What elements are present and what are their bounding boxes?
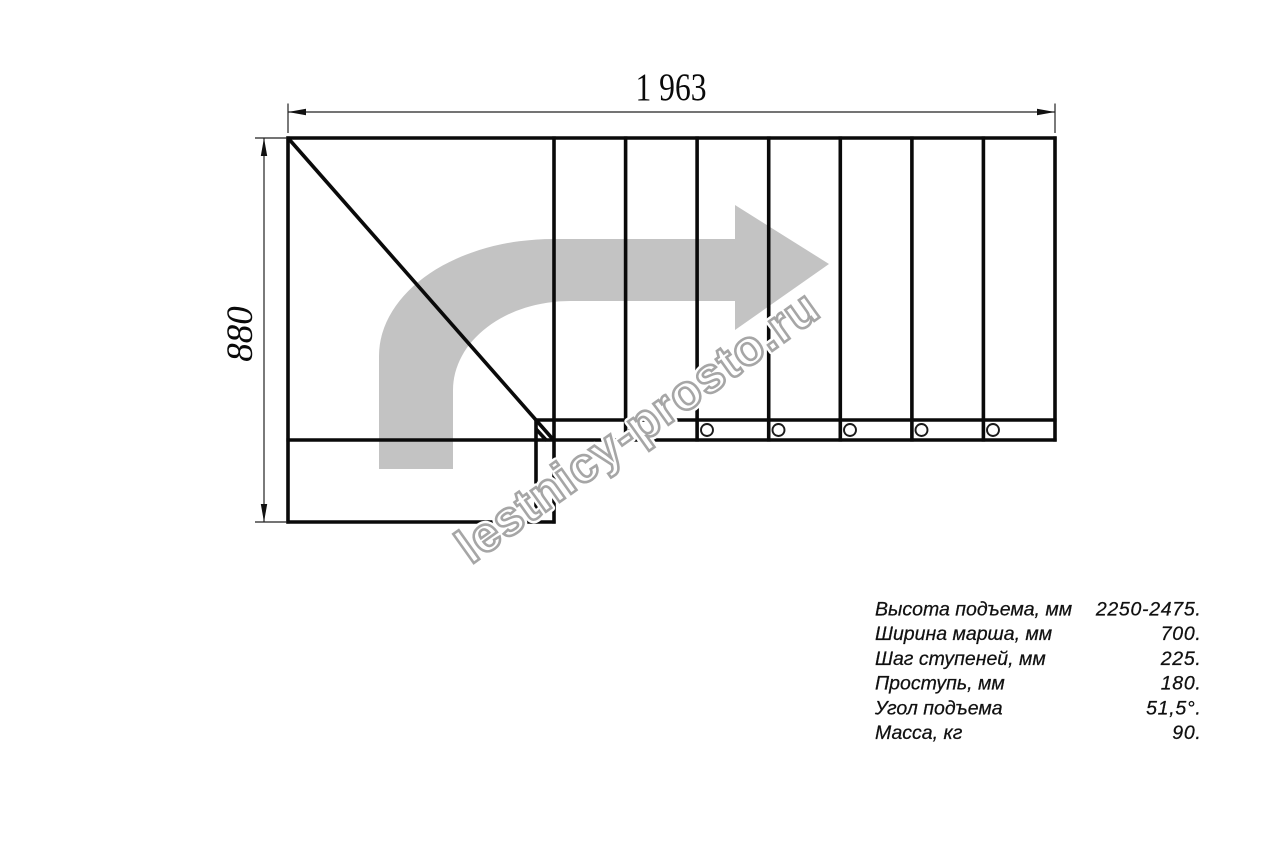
svg-text:225.: 225. [1160,648,1202,670]
svg-text:180.: 180. [1161,673,1202,695]
svg-text:1 963: 1 963 [635,65,706,109]
svg-text:Высота подъема, мм: Высота подъема, мм [875,599,1072,621]
svg-text:Шаг ступеней, мм: Шаг ступеней, мм [875,648,1046,670]
svg-text:90.: 90. [1172,722,1201,744]
svg-text:51,5°.: 51,5°. [1146,697,1201,719]
svg-text:880: 880 [220,306,261,362]
svg-text:Масса, кг: Масса, кг [875,722,963,744]
svg-text:Проступь, мм: Проступь, мм [875,673,1005,695]
svg-text:Угол подъема: Угол подъема [874,697,1003,719]
svg-text:700.: 700. [1161,623,1202,645]
svg-text:lestnicy-prosto.ru: lestnicy-prosto.ru [446,280,829,574]
svg-text:2250-2475.: 2250-2475. [1095,599,1202,621]
svg-text:Ширина марша, мм: Ширина марша, мм [875,623,1052,645]
